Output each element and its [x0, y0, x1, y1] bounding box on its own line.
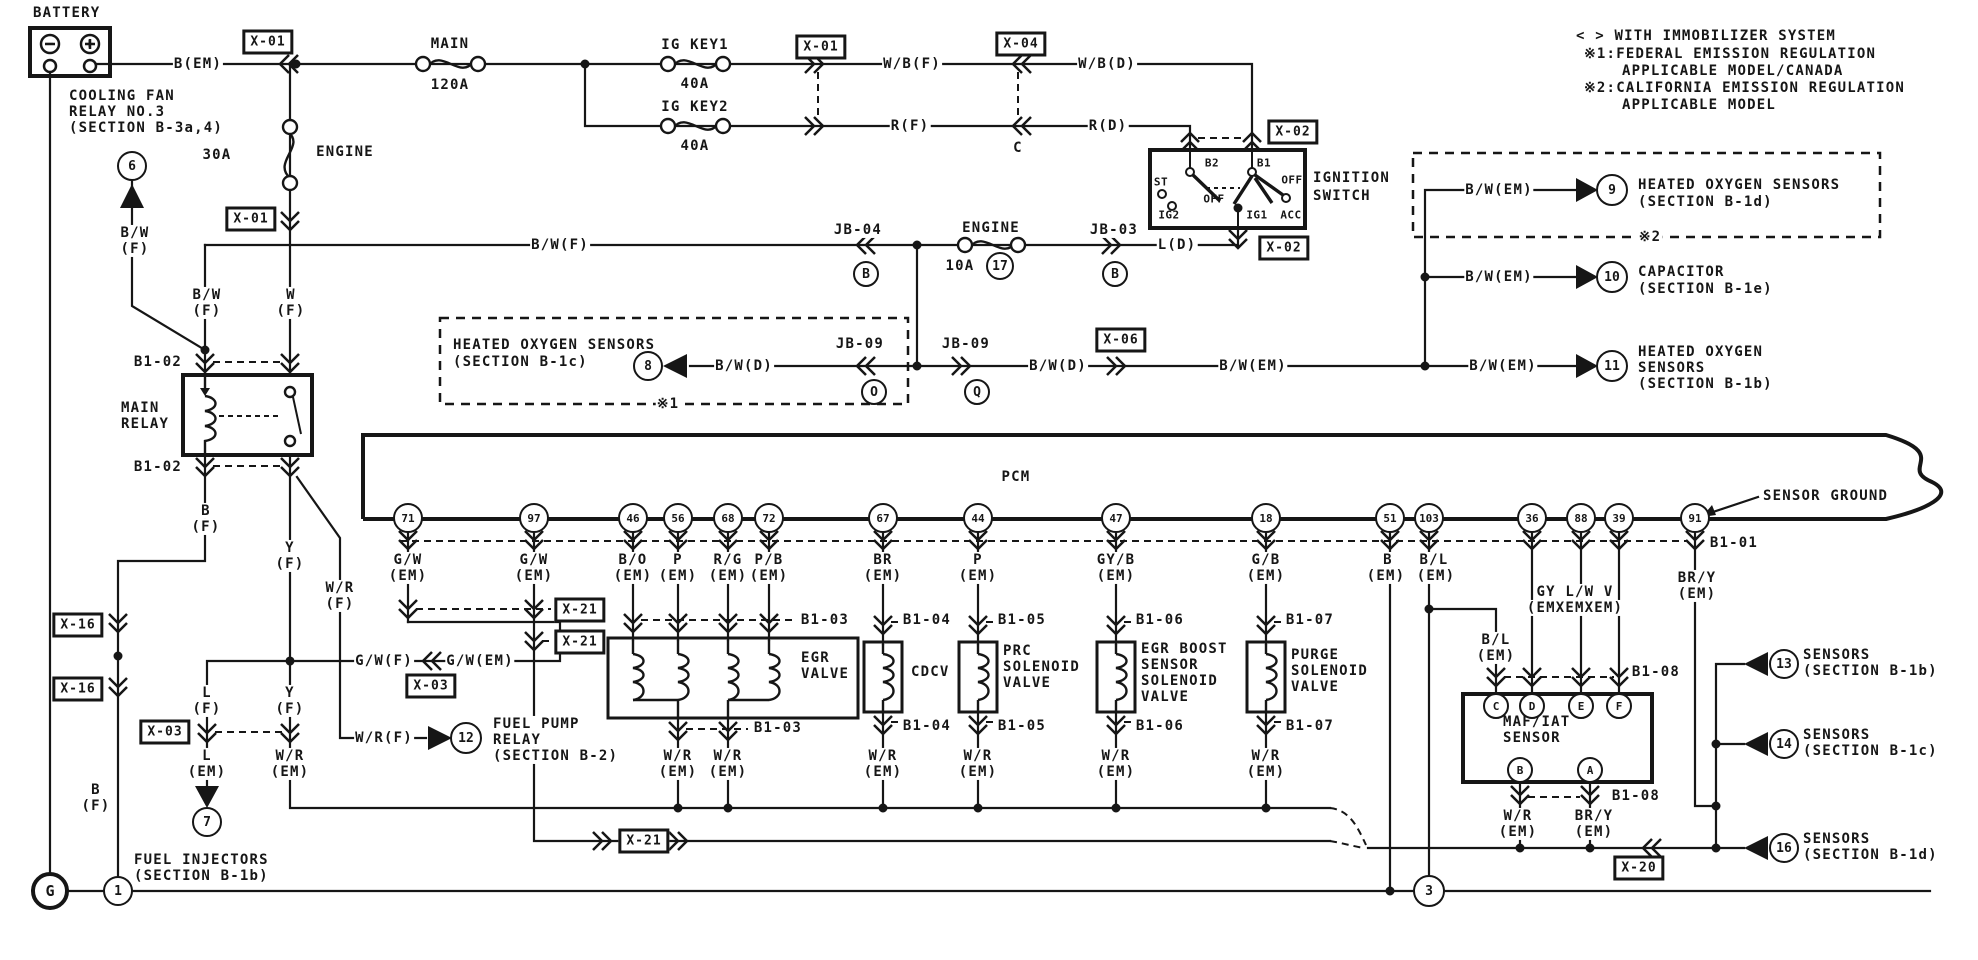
ref-circle-ref-1: 1: [103, 876, 133, 906]
wire-wr-cdcv-b: (EM): [863, 764, 904, 780]
ref-circle-ref-14: 14: [1769, 729, 1799, 759]
wire-bo-a: B/O: [618, 552, 649, 568]
conn-b106-top: B1-06: [1135, 612, 1185, 628]
jb03-label: JB-03: [1089, 222, 1139, 238]
conn-b105-top: B1-05: [997, 612, 1047, 628]
wire-bw-f-cooling-2: (F): [120, 241, 151, 257]
fuel-pump-relay-2: RELAY: [492, 732, 542, 748]
term-b2: B2: [1204, 158, 1220, 171]
conn-x21-a: X-21: [554, 598, 605, 623]
pcm-pin-47: 47: [1101, 503, 1131, 533]
fuse-main-name: MAIN: [430, 36, 471, 52]
egr-boost-1: EGR BOOST: [1140, 641, 1229, 657]
note-star2: ※2:CALIFORNIA EMISSION REGULATION: [1583, 80, 1906, 96]
wire-wr-egr2a: W/R: [713, 748, 744, 764]
main-relay-name-1: MAIN: [120, 400, 161, 416]
wire-b-em: B(EM): [173, 56, 223, 72]
wire-y-f-1a: Y: [284, 540, 296, 556]
wire-l-f-b: (F): [192, 701, 223, 717]
conn-x02-top: X-02: [1267, 120, 1318, 145]
wire-wr-f-1a: W/R: [325, 580, 356, 596]
pcm-label: PCM: [1001, 469, 1032, 485]
wire-gw-97b: (EM): [514, 568, 555, 584]
wire-l-em-a: L: [201, 748, 213, 764]
conn-b108-bottom: B1-08: [1611, 788, 1661, 804]
conn-x02-bottom: X-02: [1258, 236, 1309, 261]
fuel-pump-relay-1: FUEL PUMP: [492, 716, 581, 732]
term-acc: ACC: [1279, 210, 1302, 223]
conn-x04-pin-c: C: [1012, 140, 1024, 156]
term-off-2: OFF: [1202, 194, 1225, 207]
wire-r-d: R(D): [1088, 118, 1129, 134]
wire-wr-f-2: W/R(F): [354, 730, 414, 746]
hos-1d-2: (SECTION B-1d): [1637, 194, 1774, 210]
fuse-igkey2-name: IG KEY2: [660, 99, 729, 115]
ref-circle-ref-12: 12: [450, 722, 482, 754]
wire-wb-f: W/B(F): [882, 56, 942, 72]
term-st: ST: [1153, 177, 1169, 190]
maf-pin-F: F: [1606, 693, 1632, 719]
wire-bw-em-9: B/W(EM): [1464, 182, 1533, 198]
wire-p56-a: P: [672, 552, 684, 568]
conn-x20: X-20: [1613, 856, 1664, 881]
wiring-diagram-page: < > WITH IMMOBILIZER SYSTEM※1:FEDERAL EM…: [0, 0, 1978, 960]
battery-minus: −: [44, 36, 56, 52]
wire-b-f-2b: (F): [81, 798, 112, 814]
prc-1: PRC: [1002, 643, 1033, 659]
fuse-igkey2-rating: 40A: [680, 138, 711, 154]
wire-b-f-2a: B: [90, 782, 102, 798]
wire-wr-egrb-b: (EM): [1096, 764, 1137, 780]
wire-bl-maf-a: B/L: [1481, 632, 1512, 648]
egr-valve-2: VALVE: [800, 666, 850, 682]
wire-bw-em-10: B/W(EM): [1464, 269, 1533, 285]
wire-gw-71b: (EM): [388, 568, 429, 584]
wire-bry-91b: (EM): [1677, 586, 1718, 602]
maf-pin-C: C: [1483, 693, 1509, 719]
wire-rg-b: (EM): [708, 568, 749, 584]
conn-x01-battery: X-01: [242, 30, 293, 55]
conn-x21-b: X-21: [554, 630, 605, 655]
wire-pb-a: P/B: [754, 552, 785, 568]
wire-rg-a: R/G: [713, 552, 744, 568]
wire-bw-f-cooling-1: B/W: [120, 225, 151, 241]
wire-bry-mafa-b: (EM): [1574, 824, 1615, 840]
wire-wr-mafb-a: W/R: [1503, 808, 1534, 824]
harness-dash-curves: [1330, 808, 1366, 848]
conn-b107-bottom: B1-07: [1285, 718, 1335, 734]
sensors-16-2: (SECTION B-1d): [1802, 847, 1939, 863]
conn-b102-top: B1-02: [133, 354, 183, 370]
wire-gw-em-x03: G/W(EM): [445, 653, 514, 669]
conn-b103-bottom: B1-03: [753, 720, 803, 736]
conn-b106-bottom: B1-06: [1135, 718, 1185, 734]
wire-gw-71a: G/W: [393, 552, 424, 568]
note-star1-cont: APPLICABLE MODEL/CANADA: [1621, 63, 1844, 79]
battery-plus: +: [84, 36, 96, 52]
wire-gy-lw-v: GY L/W V: [1535, 584, 1614, 600]
conn-x16-a: X-16: [52, 613, 103, 638]
wire-b-f-1b: (F): [191, 519, 222, 535]
hos-1d-1: HEATED OXYGEN SENSORS: [1637, 177, 1841, 193]
ref-circle-ref-17: 17: [986, 252, 1014, 280]
wire-p44-a: P: [972, 552, 984, 568]
pcm-pin-44: 44: [963, 503, 993, 533]
pcm-pin-91: 91: [1680, 503, 1710, 533]
note-star2-cont: APPLICABLE MODEL: [1621, 97, 1777, 113]
maf-pin-D: D: [1519, 693, 1545, 719]
cooling-fan-relay-2: RELAY NO.3: [68, 104, 166, 120]
pcm-pin-46: 46: [618, 503, 648, 533]
pcm-pin-68: 68: [713, 503, 743, 533]
ref-circle-ground-g: G: [31, 872, 69, 910]
jb09-b-label: JB-09: [941, 336, 991, 352]
fuse-engine30-name: ENGINE: [315, 144, 375, 160]
wire-l-f-a: L: [201, 685, 213, 701]
jb04-label: JB-04: [833, 222, 883, 238]
wire-bl103-b: (EM): [1416, 568, 1457, 584]
purge-3: VALVE: [1290, 679, 1340, 695]
main-relay-internals: [205, 377, 301, 453]
term-ig2: IG2: [1157, 210, 1180, 223]
fuel-injectors-1: FUEL INJECTORS: [133, 852, 270, 868]
pcm-pin-18: 18: [1251, 503, 1281, 533]
conn-x04: X-04: [995, 32, 1046, 57]
diagram-canvas: [0, 0, 1978, 960]
wire-b51-b: (EM): [1366, 568, 1407, 584]
wire-wr-egr1a: W/R: [663, 748, 694, 764]
fuse-symbols: [283, 57, 1025, 252]
wire-bw-d-2: B/W(D): [1028, 358, 1088, 374]
wire-gw-f: G/W(F): [354, 653, 414, 669]
wire-bw-d-1: B/W(D): [714, 358, 774, 374]
egr-boost-3: SOLENOID: [1140, 673, 1219, 689]
wire-gb-a: G/B: [1251, 552, 1282, 568]
wire-w-f-1: W: [285, 287, 297, 303]
wire-wr-f-1b: (F): [325, 596, 356, 612]
conn-b101: B1-01: [1709, 535, 1759, 551]
ignition-switch-name-2: SWITCH: [1312, 188, 1372, 204]
fuse-engine30-rating: 30A: [202, 147, 233, 163]
pcm-pin-51: 51: [1375, 503, 1405, 533]
wire-bry-91a: BR/Y: [1677, 570, 1718, 586]
battery-label: BATTERY: [32, 5, 101, 21]
wire-y-f-1b: (F): [275, 556, 306, 572]
wire-gb-b: (EM): [1246, 568, 1287, 584]
term-b1: B1: [1256, 158, 1272, 171]
wire-r-f: R(F): [890, 118, 931, 134]
purge-1: PURGE: [1290, 647, 1340, 663]
wire-l-d: L(D): [1157, 237, 1198, 253]
maf-pin-A: A: [1577, 757, 1603, 783]
wire-br-b: (EM): [863, 568, 904, 584]
purge-2: SOLENOID: [1290, 663, 1369, 679]
wire-wr-egr1b: (EM): [658, 764, 699, 780]
ref-circle-ref-13: 13: [1769, 649, 1799, 679]
conn-x06: X-06: [1095, 328, 1146, 353]
note-star1: ※1:FEDERAL EMISSION REGULATION: [1583, 46, 1877, 62]
conn-b105-bottom: B1-05: [997, 718, 1047, 734]
conn-b108-top: B1-08: [1631, 664, 1681, 680]
wire-wr-purge-b: (EM): [1246, 764, 1287, 780]
wire-bw-f-relay-2: (F): [192, 303, 223, 319]
star2-mark: ※2: [1638, 229, 1663, 245]
hos-1b-1: HEATED OXYGEN: [1637, 344, 1764, 360]
note-immobilizer: < > WITH IMMOBILIZER SYSTEM: [1575, 28, 1837, 44]
wire-bw-em-x06: B/W(EM): [1218, 358, 1287, 374]
fuse-igkey1-name: IG KEY1: [660, 37, 729, 53]
ref-circle-ref-3: 3: [1413, 875, 1445, 907]
pcm-pin-103: 103: [1414, 503, 1444, 533]
pcm-pin-56: 56: [663, 503, 693, 533]
fuse-main-rating: 120A: [430, 77, 471, 93]
pcm-pin-88: 88: [1566, 503, 1596, 533]
pcm-pin-97: 97: [519, 503, 549, 533]
egr-valve-1: EGR: [800, 650, 831, 666]
wire-pb-b: (EM): [749, 568, 790, 584]
wire-wr-prc-b: (EM): [958, 764, 999, 780]
capacitor-1: CAPACITOR: [1637, 264, 1726, 280]
wire-gyb-b: (EM): [1096, 568, 1137, 584]
maf-pin-B: B: [1507, 757, 1533, 783]
wire-bw-f-main: B/W(F): [530, 237, 590, 253]
wire-y-f-2b: (F): [275, 701, 306, 717]
prc-2: SOLENOID: [1002, 659, 1081, 675]
fuse-engine10-rating: 10A: [945, 258, 976, 274]
main-relay-name-2: RELAY: [120, 416, 170, 432]
prc-3: VALVE: [1002, 675, 1052, 691]
conn-x21-c: X-21: [618, 829, 669, 854]
wire-p56-b: (EM): [658, 568, 699, 584]
wire-w-f-2: (F): [276, 303, 307, 319]
conn-x01-igkey: X-01: [795, 35, 846, 60]
wire-gw-97a: G/W: [519, 552, 550, 568]
conn-x03-b: X-03: [139, 720, 190, 745]
jb09-a-label: JB-09: [835, 336, 885, 352]
pcm-pin-71: 71: [393, 503, 423, 533]
wire-br-a: BR: [872, 552, 893, 568]
wire-wr-purge-a: W/R: [1251, 748, 1282, 764]
ref-circle-jb04-pin-b: B: [853, 261, 879, 287]
wire-bry-mafa-a: BR/Y: [1574, 808, 1615, 824]
wire-wr-mafb-b: (EM): [1498, 824, 1539, 840]
wire-bl-maf-b: (EM): [1476, 648, 1517, 664]
maf-pin-E: E: [1568, 693, 1594, 719]
wire-gyb-a: GY/B: [1096, 552, 1137, 568]
conn-b102-bottom: B1-02: [133, 459, 183, 475]
wire-wb-d: W/B(D): [1077, 56, 1137, 72]
sensors-13-1: SENSORS: [1802, 647, 1871, 663]
wire-l-em-b: (EM): [187, 764, 228, 780]
ignition-switch-name-1: IGNITION: [1312, 170, 1391, 186]
conn-b104-bottom: B1-04: [902, 718, 952, 734]
ref-circle-ref-10: 10: [1596, 261, 1628, 293]
fuse-igkey1-rating: 40A: [680, 76, 711, 92]
term-off-1: OFF: [1280, 175, 1303, 188]
maf-name-2: SENSOR: [1502, 730, 1562, 746]
wire-wr-prc-a: W/R: [963, 748, 994, 764]
wire-b-f-1a: B: [200, 503, 212, 519]
wire-wr-cdcv-a: W/R: [868, 748, 899, 764]
pcm-pin-72: 72: [754, 503, 784, 533]
sensors-13-2: (SECTION B-1b): [1802, 663, 1939, 679]
ref-circle-jb03-pin-b: B: [1102, 261, 1128, 287]
ref-circle-jb09-pin-o: O: [861, 379, 887, 405]
cooling-fan-relay-1: COOLING FAN: [68, 88, 176, 104]
sensors-14-2: (SECTION B-1c): [1802, 743, 1939, 759]
ref-circle-ref-8: 8: [633, 351, 663, 381]
wire-b51-a: B: [1382, 552, 1394, 568]
conn-b103-top: B1-03: [800, 612, 850, 628]
sensors-14-1: SENSORS: [1802, 727, 1871, 743]
ref-circle-ref-11: 11: [1596, 350, 1628, 382]
cooling-fan-relay-3: (SECTION B-3a,4): [68, 120, 224, 136]
wire-y-f-2a: Y: [284, 685, 296, 701]
ref-circle-ref-6: 6: [117, 151, 147, 181]
sensor-ground-label: SENSOR GROUND: [1762, 488, 1889, 504]
star1-mark: ※1: [656, 396, 681, 412]
capacitor-2: (SECTION B-1e): [1637, 281, 1774, 297]
term-ig1: IG1: [1245, 210, 1268, 223]
egr-boost-2: SENSOR: [1140, 657, 1200, 673]
conn-x01-left: X-01: [225, 207, 276, 232]
hos-1c-2: (SECTION B-1c): [452, 354, 589, 370]
hos-1b-3: (SECTION B-1b): [1637, 376, 1774, 392]
wire-wr-em-relay-a: W/R: [275, 748, 306, 764]
conn-b104-top: B1-04: [902, 612, 952, 628]
hos-1c-1: HEATED OXYGEN SENSORS: [452, 337, 656, 353]
conn-x03-a: X-03: [405, 674, 456, 699]
fuel-injectors-2: (SECTION B-1b): [133, 868, 270, 884]
conn-x16-b: X-16: [52, 677, 103, 702]
wire-gy-lw-v-em: (EMXEMXEM): [1526, 600, 1624, 616]
ref-circle-ref-7: 7: [192, 807, 222, 837]
ref-circle-jb09-pin-q: Q: [964, 379, 990, 405]
conn-b107-top: B1-07: [1285, 612, 1335, 628]
fuse-engine10-name: ENGINE: [961, 220, 1021, 236]
wire-wr-em-relay-b: (EM): [270, 764, 311, 780]
wire-bw-f-relay-1: B/W: [192, 287, 223, 303]
wire-p44-b: (EM): [958, 568, 999, 584]
wire-bo-b: (EM): [613, 568, 654, 584]
wire-bw-em-11: B/W(EM): [1468, 358, 1537, 374]
battery-box: [30, 28, 110, 76]
cdcv-name: CDCV: [910, 664, 951, 680]
egr-boost-4: VALVE: [1140, 689, 1190, 705]
pcm-pin-39: 39: [1604, 503, 1634, 533]
sensors-16-1: SENSORS: [1802, 831, 1871, 847]
wire-bl103-a: B/L: [1419, 552, 1450, 568]
pcm-pin-36: 36: [1517, 503, 1547, 533]
fuel-pump-relay-3: (SECTION B-2): [492, 748, 619, 764]
ref-circle-ref-9: 9: [1596, 174, 1628, 206]
hos-1b-2: SENSORS: [1637, 360, 1706, 376]
pcm-pin-67: 67: [868, 503, 898, 533]
wire-wr-egrb-a: W/R: [1101, 748, 1132, 764]
wire-wr-egr2b: (EM): [708, 764, 749, 780]
ref-circle-ref-16: 16: [1769, 833, 1799, 863]
